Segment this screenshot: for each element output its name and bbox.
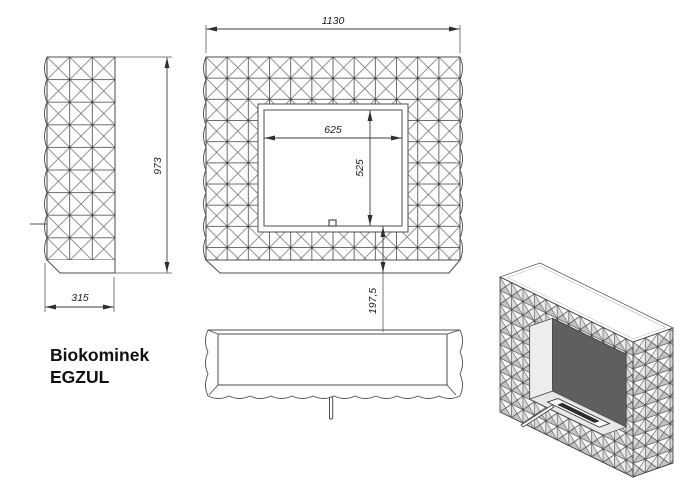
top-view-scalloped-edge-front (208, 396, 460, 399)
drawing-title-line1: Biokominek (50, 345, 149, 365)
dimension-label-depth: 315 (71, 292, 89, 304)
dimension-opening-height: 525 (354, 111, 370, 226)
iso-right-face (633, 328, 673, 477)
control-rod-top-view (330, 397, 333, 419)
top-view-top-panel (218, 334, 447, 385)
dimension-label-opening-bottom-offset: 197,5 (367, 288, 379, 314)
dimension-label-overall-width: 1130 (322, 15, 345, 27)
dimension-label-opening-height: 525 (354, 159, 366, 177)
technical-drawing-canvas: 973 315 1130 625 52 (0, 0, 690, 500)
top-view-scalloped-edge-left (206, 330, 209, 396)
front-view-quilted-frame (206, 57, 460, 260)
side-view: 973 315 (30, 57, 172, 312)
front-view-base-chamfer (206, 260, 460, 273)
side-view-quilted-body (47, 57, 115, 260)
technical-drawing-page: 973 315 1130 625 52 (0, 0, 690, 500)
side-view-base-chamfer (47, 260, 115, 273)
iso-firebox-left-wall (530, 318, 553, 399)
burner-switch (329, 220, 336, 226)
dimension-label-overall-height: 973 (152, 157, 164, 175)
top-view-scalloped-edge-right (460, 330, 463, 396)
isometric-view (500, 263, 673, 477)
dimension-overall-width: 1130 (206, 15, 460, 53)
dimension-opening-width: 625 (265, 124, 402, 138)
drawing-title-line2: EGZUL (50, 367, 110, 387)
top-view (206, 330, 463, 419)
drawing-title: Biokominek EGZUL (50, 345, 149, 387)
dimension-overall-height: 973 (115, 57, 172, 273)
dimension-label-opening-width: 625 (324, 124, 342, 136)
front-view: 1130 625 525 197,5 (204, 15, 463, 332)
